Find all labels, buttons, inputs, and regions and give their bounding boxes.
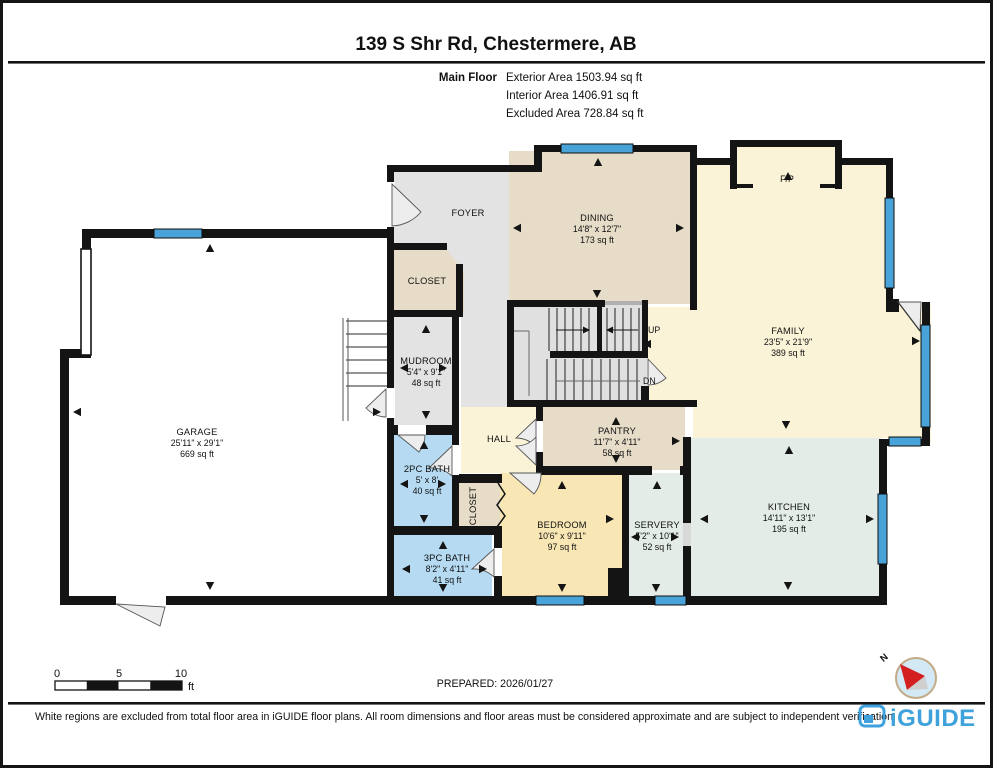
garage-dims: 25'11" x 29'1" xyxy=(171,438,224,448)
stairs-dn-label: DN xyxy=(643,376,656,386)
dining-dims: 14'8" x 12'7" xyxy=(573,224,621,234)
room-closet-bedroom xyxy=(457,481,502,530)
bedroom-dims: 10'6" x 9'11" xyxy=(538,531,586,541)
header: 139 S Shr Rd, Chestermere, AB Main Floor… xyxy=(8,34,985,120)
window xyxy=(154,229,202,238)
floor-label: Main Floor xyxy=(439,72,498,84)
bath3-area: 41 sq ft xyxy=(433,575,462,585)
floor-plan-canvas: 139 S Shr Rd, Chestermere, AB Main Floor… xyxy=(0,0,993,768)
mudroom-label: MUDROOM xyxy=(400,356,452,366)
prepared-date: PREPARED: 2026/01/27 xyxy=(437,678,554,690)
window xyxy=(536,596,584,605)
mudroom-area: 48 sq ft xyxy=(412,378,441,388)
servery-label: SERVERY xyxy=(634,520,680,530)
family-area: 389 sq ft xyxy=(771,348,805,358)
room-garage xyxy=(66,236,390,598)
bath3-label: 3PC BATH xyxy=(424,553,470,563)
bath2-area: 40 sq ft xyxy=(413,486,442,496)
window xyxy=(655,596,686,605)
family-label: FAMILY xyxy=(771,326,805,336)
footer-divider xyxy=(8,702,985,705)
excluded-area: Excluded Area 728.84 sq ft xyxy=(506,108,644,120)
pantry-label: PANTRY xyxy=(598,426,636,436)
window xyxy=(561,144,633,153)
garage-area: 669 sq ft xyxy=(180,449,214,459)
exterior-area: Exterior Area 1503.94 sq ft xyxy=(506,72,643,84)
pantry-dims: 11'7" x 4'11" xyxy=(594,437,641,447)
bath2-label: 2PC BATH xyxy=(404,464,450,474)
header-divider xyxy=(8,61,985,64)
scale-bar: 0 5 10 ft xyxy=(54,668,194,693)
page-title: 139 S Shr Rd, Chestermere, AB xyxy=(355,34,636,55)
bedroom-label: BEDROOM xyxy=(537,520,586,530)
hall-label: HALL xyxy=(487,434,511,444)
window xyxy=(889,437,921,446)
family-dims: 23'5" x 21'9" xyxy=(764,337,812,347)
servery-dims: 5'2" x 10'1" xyxy=(635,531,678,541)
closet-foyer-label: CLOSET xyxy=(408,276,447,286)
closet-bedroom-label: CLOSET xyxy=(468,487,478,526)
floorplan-sheet: 139 S Shr Rd, Chestermere, AB Main Floor… xyxy=(0,0,993,768)
scale-tick-10: 10 xyxy=(175,668,187,680)
compass-icon: N xyxy=(878,652,936,698)
window xyxy=(885,198,894,288)
disclaimer-text: White regions are excluded from total fl… xyxy=(35,711,896,723)
compass-north-label: N xyxy=(878,652,890,665)
pantry-area: 58 sq ft xyxy=(603,448,632,458)
room-family xyxy=(693,162,889,438)
kitchen-dims: 14'11" x 13'1" xyxy=(763,513,816,523)
window xyxy=(878,494,887,564)
servery-area: 52 sq ft xyxy=(643,542,672,552)
bedroom-area: 97 sq ft xyxy=(548,542,577,552)
stair-rail xyxy=(605,301,642,305)
dining-area: 173 sq ft xyxy=(580,235,614,245)
window xyxy=(921,325,930,427)
scale-unit: ft xyxy=(188,681,194,693)
scale-tick-5: 5 xyxy=(116,668,122,680)
kitchen-area: 195 sq ft xyxy=(772,524,806,534)
fireplace-label: F/P xyxy=(780,174,794,184)
iguide-wordmark: iGUIDE xyxy=(890,705,976,732)
dining-label: DINING xyxy=(580,213,614,223)
bath2-dims: 5' x 8' xyxy=(416,475,439,485)
scale-tick-0: 0 xyxy=(54,668,60,680)
interior-area: Interior Area 1406.91 sq ft xyxy=(506,90,639,102)
garage-label: GARAGE xyxy=(177,427,218,437)
stairs-up-label: UP xyxy=(648,325,660,335)
kitchen-label: KITCHEN xyxy=(768,502,810,512)
garage-man-door-leaf xyxy=(116,604,165,626)
bath3-dims: 8'2" x 4'11" xyxy=(426,564,469,574)
mudroom-dims: 5'4" x 9'1" xyxy=(407,367,445,377)
foyer-label: FOYER xyxy=(451,208,484,218)
